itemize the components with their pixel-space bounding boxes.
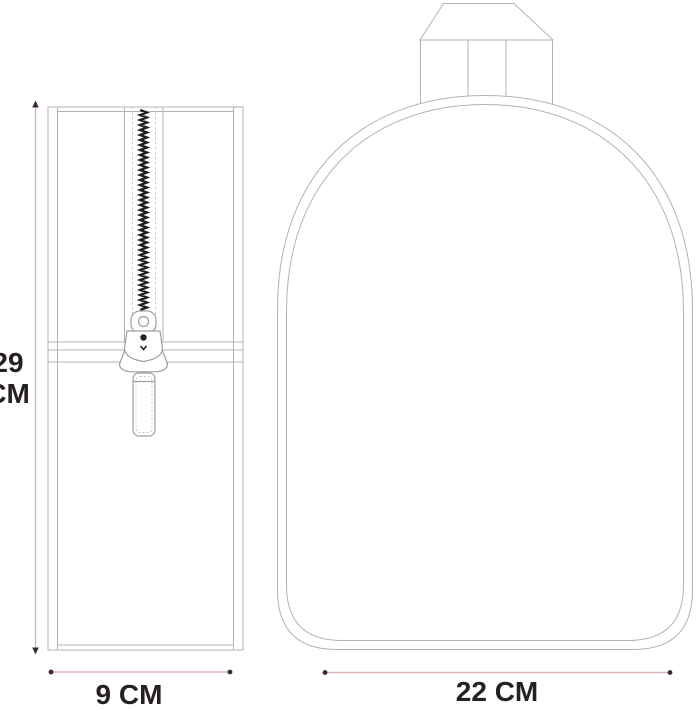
height-dimension-label: 29 CM [0, 347, 40, 409]
backpack-handle [420, 4, 553, 109]
height-value: 29 [0, 347, 40, 378]
side-width-dimension-line [49, 670, 233, 675]
front-width-dimension-label: 22 CM [417, 676, 577, 708]
arrow-end-dot-right [228, 670, 233, 675]
arrow-end-dot-left [323, 670, 328, 675]
technical-drawing [0, 0, 700, 700]
zipper-slider-crown-hole [139, 317, 149, 327]
backpack-outer-outline [278, 96, 693, 650]
side-width-dimension-label: 9 CM [69, 679, 189, 711]
zipper-slider-pin [140, 334, 146, 340]
arrow-end-dot-left [49, 670, 54, 675]
front-width-dimension-line [323, 670, 673, 675]
backpack-dimension-diagram: 29 CM 9 CM 22 CM [0, 0, 700, 700]
height-unit: CM [0, 378, 40, 409]
handle-top-loop [420, 4, 553, 41]
arrow-up-icon [32, 101, 39, 108]
arrow-end-dot-right [668, 670, 673, 675]
arrow-down-icon [32, 648, 39, 655]
backpack-front-outline [278, 96, 693, 650]
